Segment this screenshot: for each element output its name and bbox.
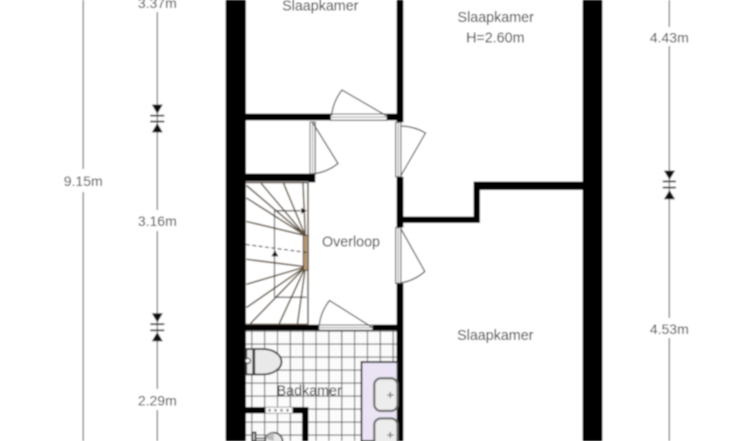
svg-text:4.43m: 4.43m bbox=[650, 30, 689, 46]
svg-text:Slaapkamer: Slaapkamer bbox=[282, 0, 359, 15]
svg-text:Slaapkamer: Slaapkamer bbox=[458, 10, 535, 26]
svg-text:3.37m: 3.37m bbox=[138, 0, 177, 11]
svg-text:Overloop: Overloop bbox=[322, 235, 380, 251]
svg-text:9.15m: 9.15m bbox=[64, 173, 103, 189]
svg-text:Slaapkamer: Slaapkamer bbox=[457, 328, 534, 344]
svg-text:3.16m: 3.16m bbox=[138, 213, 177, 229]
svg-text:H=2.60m: H=2.60m bbox=[466, 31, 524, 47]
svg-text:2.29m: 2.29m bbox=[138, 393, 177, 409]
svg-text:4.53m: 4.53m bbox=[650, 321, 689, 337]
svg-text:Badkamer: Badkamer bbox=[277, 384, 342, 400]
